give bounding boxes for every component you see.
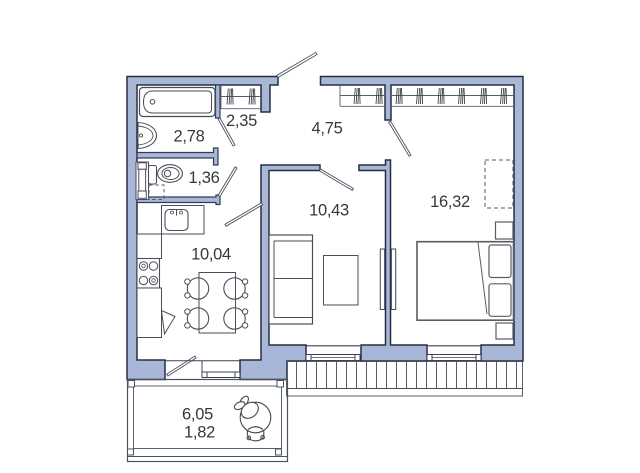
svg-text:1,36: 1,36 <box>189 169 220 187</box>
svg-text:10,04: 10,04 <box>191 246 231 264</box>
svg-text:4,75: 4,75 <box>312 120 343 138</box>
svg-text:1,82: 1,82 <box>184 424 215 442</box>
svg-text:16,32: 16,32 <box>430 193 470 211</box>
svg-text:2,35: 2,35 <box>226 112 257 130</box>
svg-text:6,05: 6,05 <box>182 406 213 424</box>
svg-text:10,43: 10,43 <box>309 202 349 220</box>
svg-text:2,78: 2,78 <box>174 128 205 146</box>
